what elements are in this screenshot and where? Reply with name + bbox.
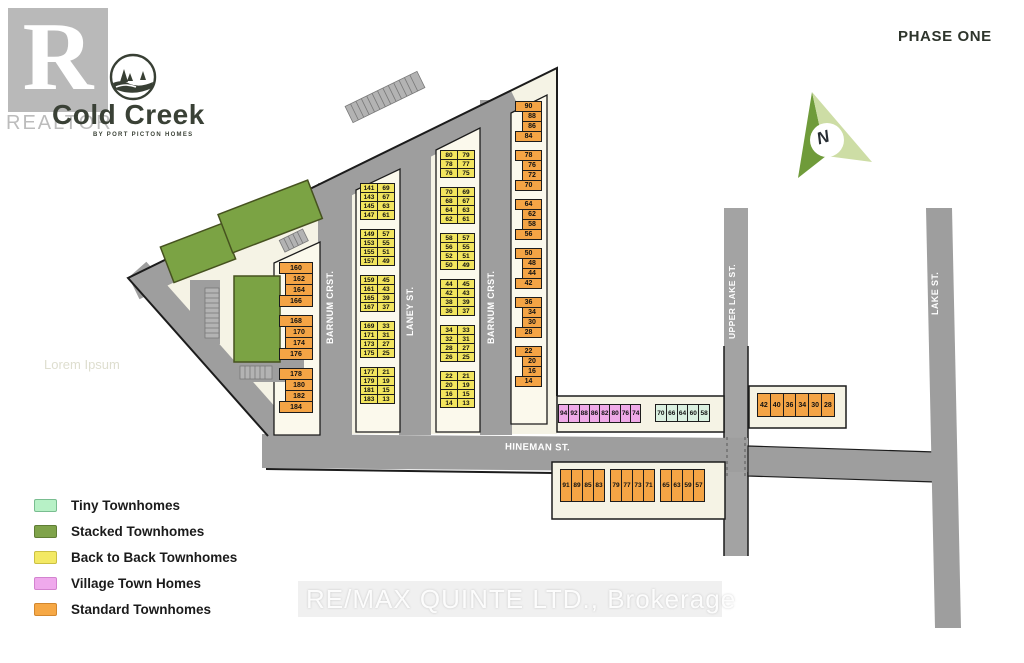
- lot-13: 13: [377, 394, 395, 404]
- lot-25: 25: [457, 352, 475, 362]
- site-plan-page: R REALTOR Cold Creek BY PORT PICTON HOME…: [0, 0, 1024, 663]
- lot-column-barnum-west: 160162164166168170174176178180182184: [279, 263, 313, 413]
- lot-30: 30: [808, 393, 822, 417]
- street-label-hineman: HINEMAN ST.: [505, 442, 570, 454]
- road-hineman-east: [748, 446, 935, 482]
- lot-166: 166: [279, 295, 313, 307]
- brand-name: Cold Creek: [52, 99, 205, 131]
- lot-pair: 2625: [440, 352, 475, 362]
- lot-26: 26: [440, 352, 458, 362]
- lot-40: 40: [770, 393, 784, 417]
- street-label-laney: LANEY ST.: [405, 260, 415, 336]
- lot-61: 61: [457, 214, 475, 224]
- lot-group: 15945161431653916737: [360, 275, 395, 312]
- lot-group: 178180182184: [279, 369, 313, 413]
- lot-14: 14: [440, 398, 458, 408]
- tree-icon: [120, 69, 128, 82]
- faint-watermark: Lorem Ipsum: [44, 357, 120, 372]
- lot-pair: 3637: [440, 306, 475, 316]
- lot-column-back-to-back-west: 1416914367145631476114957153551555115749…: [360, 183, 395, 404]
- lot-25: 25: [377, 348, 395, 358]
- lot-row-hineman-south: 918985837977737165635957: [560, 469, 705, 502]
- lot-group: 5857565552515049: [440, 233, 475, 270]
- lot-group: 3433323128272625: [440, 325, 475, 362]
- lot-pair: 7675: [440, 168, 475, 178]
- legend: Tiny TownhomesStacked TownhomesBack to B…: [34, 498, 237, 617]
- lot-175: 175: [360, 348, 378, 358]
- legend-item: Tiny Townhomes: [34, 498, 237, 513]
- lot-column-back-to-back-east: 8079787776757069686764636261585756555251…: [440, 150, 475, 408]
- lot-61: 61: [377, 210, 395, 220]
- lot-group: 22201614: [515, 347, 542, 387]
- legend-swatch: [34, 577, 57, 590]
- lot-group: 50484442: [515, 249, 542, 289]
- legend-item: Back to Back Townhomes: [34, 550, 237, 565]
- lot-group: 90888684: [515, 102, 542, 142]
- legend-swatch: [34, 551, 57, 564]
- lot-pair: 15749: [360, 256, 395, 266]
- lot-row-village: 9492888682807674: [558, 404, 641, 423]
- street-label-upper-lake: UPPER LAKE ST.: [727, 225, 737, 339]
- street-label-barnum-west: BARNUM CRST.: [325, 252, 335, 344]
- cold-creek-logo-icon: [108, 52, 158, 102]
- lot-pair: 17525: [360, 348, 395, 358]
- legend-label: Back to Back Townhomes: [71, 550, 237, 565]
- legend-swatch: [34, 525, 57, 538]
- lot-50: 50: [440, 260, 458, 270]
- lot-group: 16933171311732717525: [360, 321, 395, 358]
- lot-42: 42: [515, 278, 542, 289]
- lot-57: 57: [693, 469, 705, 502]
- legend-swatch: [34, 603, 57, 616]
- lot-group: 64625856: [515, 200, 542, 240]
- lot-group: 65635957: [660, 469, 705, 502]
- lot-group: 2221201916151413: [440, 371, 475, 408]
- lot-84: 84: [515, 131, 542, 142]
- lot-36: 36: [783, 393, 797, 417]
- legend-item: Standard Townhomes: [34, 602, 237, 617]
- stacked-building-c: [234, 276, 280, 362]
- lot-34: 34: [795, 393, 809, 417]
- lot-14: 14: [515, 376, 542, 387]
- lot-pair: 6261: [440, 214, 475, 224]
- lot-37: 37: [377, 302, 395, 312]
- lot-42: 42: [757, 393, 771, 417]
- lot-75: 75: [457, 168, 475, 178]
- tree-icon: [140, 71, 146, 80]
- lot-row-tiny: 7066646058: [655, 404, 710, 422]
- lot-group: 36343028: [515, 298, 542, 338]
- legend-swatch: [34, 499, 57, 512]
- lot-group: 91898583: [560, 469, 605, 502]
- lot-row-upper-lake: 424036343028: [757, 393, 835, 417]
- legend-label: Tiny Townhomes: [71, 498, 180, 513]
- lot-group: 79777371: [610, 469, 655, 502]
- lot-49: 49: [457, 260, 475, 270]
- road-laney: [399, 152, 431, 435]
- legend-item: Village Town Homes: [34, 576, 237, 591]
- realtor-logo-letter: R: [23, 8, 94, 106]
- lot-147: 147: [360, 210, 378, 220]
- lot-76: 76: [440, 168, 458, 178]
- road-barnum-east: [480, 100, 512, 435]
- lot-group: 168170174176: [279, 316, 313, 360]
- lot-184: 184: [279, 401, 313, 413]
- lot-pair: 1413: [440, 398, 475, 408]
- road-barnum-west: [318, 183, 352, 435]
- lot-37: 37: [457, 306, 475, 316]
- lot-157: 157: [360, 256, 378, 266]
- parking-top: [345, 71, 425, 122]
- lot-group: 78767270: [515, 151, 542, 191]
- street-label-lake: LAKE ST.: [930, 245, 940, 315]
- lot-pair: 16737: [360, 302, 395, 312]
- legend-label: Standard Townhomes: [71, 602, 211, 617]
- brokerage-watermark: RE/MAX QUINTE LTD., Brokerage: [298, 581, 722, 617]
- lot-183: 183: [360, 394, 378, 404]
- lot-group: 807978777675: [440, 150, 475, 178]
- lot-group: 14957153551555115749: [360, 229, 395, 266]
- phase-label: PHASE ONE: [898, 28, 992, 45]
- realtor-logo: R: [8, 8, 108, 112]
- legend-item: Stacked Townhomes: [34, 524, 237, 539]
- tree-icon: [127, 73, 133, 81]
- lot-group: 7069686764636261: [440, 187, 475, 224]
- legend-label: Village Town Homes: [71, 576, 201, 591]
- brokerage-watermark-text: RE/MAX QUINTE LTD., Brokerage: [298, 584, 736, 615]
- lot-group: 14169143671456314761: [360, 183, 395, 220]
- north-arrow: [798, 92, 872, 178]
- lot-58: 58: [698, 404, 710, 422]
- legend-label: Stacked Townhomes: [71, 524, 204, 539]
- street-label-barnum-east: BARNUM CRST.: [486, 252, 496, 344]
- lot-49: 49: [377, 256, 395, 266]
- lot-62: 62: [440, 214, 458, 224]
- creek-icon: [113, 81, 153, 93]
- lot-13: 13: [457, 398, 475, 408]
- lot-pair: 18313: [360, 394, 395, 404]
- lot-70: 70: [515, 180, 542, 191]
- lot-71: 71: [643, 469, 655, 502]
- lot-pair: 14761: [360, 210, 395, 220]
- lot-group: 160162164166: [279, 263, 313, 307]
- lot-167: 167: [360, 302, 378, 312]
- lot-group: 17721179191811518313: [360, 367, 395, 404]
- lot-column-barnum-east: 9088868478767270646258565048444236343028…: [515, 102, 542, 387]
- lot-83: 83: [593, 469, 605, 502]
- lot-74: 74: [630, 404, 641, 423]
- lot-56: 56: [515, 229, 542, 240]
- lot-176: 176: [279, 348, 313, 360]
- brand-tagline: BY PORT PICTON HOMES: [93, 132, 193, 138]
- lot-28: 28: [821, 393, 835, 417]
- lot-pair: 5049: [440, 260, 475, 270]
- lot-group: 4445424338393637: [440, 279, 475, 316]
- lot-36: 36: [440, 306, 458, 316]
- lot-28: 28: [515, 327, 542, 338]
